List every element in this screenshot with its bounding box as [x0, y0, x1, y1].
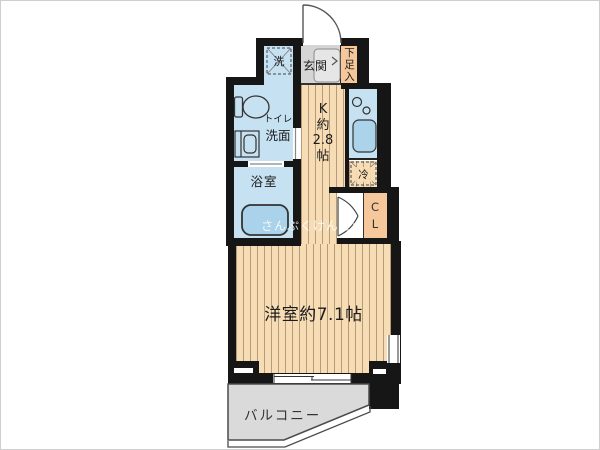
main-room-label: 洋室約7.1帖 [236, 300, 391, 325]
floor-plan: 洗 玄関 下 足 入 トイレ 洗面 浴室 K 約 2.8 帖 冷 C L 洋室約… [0, 0, 600, 450]
washer-label: 洗 [267, 53, 291, 69]
washroom-label: トイレ 洗面 [263, 111, 293, 144]
kitchen-label-part: 約 [316, 118, 329, 134]
entrance-label: 玄関 [303, 57, 327, 74]
washroom-door-icon [293, 128, 301, 159]
wall-vent-icons [234, 368, 386, 374]
washroom-label-line1: トイレ [264, 111, 293, 125]
fridge-label: 冷 [355, 167, 372, 182]
kitchen-label: K 約 2.8 帖 [308, 102, 338, 164]
kitchen-label-part: 帖 [316, 149, 329, 165]
balcony-label: バルコニー [244, 404, 321, 424]
closet-label: C L [367, 199, 383, 232]
balcony-window-icon [273, 374, 351, 383]
closet-label-char: C [371, 199, 379, 216]
shoe-storage-char: 下 [344, 47, 355, 59]
closet-label-char: L [372, 216, 378, 233]
shoe-storage-label: 下 足 入 [342, 47, 357, 83]
washroom-label-line2: 洗面 [265, 125, 290, 144]
watermark: さんぷくけんせつ [261, 217, 365, 234]
kitchen-sink-icon [349, 98, 377, 160]
bathroom-label: 浴室 [243, 171, 285, 190]
kitchen-label-part: K [319, 102, 328, 118]
bathroom-door-icon [248, 161, 284, 167]
shoe-storage-char: 足 [344, 59, 355, 71]
side-window-icon [387, 335, 400, 363]
shoe-storage-char: 入 [344, 71, 355, 83]
washbasin-icon [235, 131, 259, 157]
kitchen-label-part: 2.8 [313, 133, 334, 149]
entrance-door-icon [303, 5, 341, 43]
